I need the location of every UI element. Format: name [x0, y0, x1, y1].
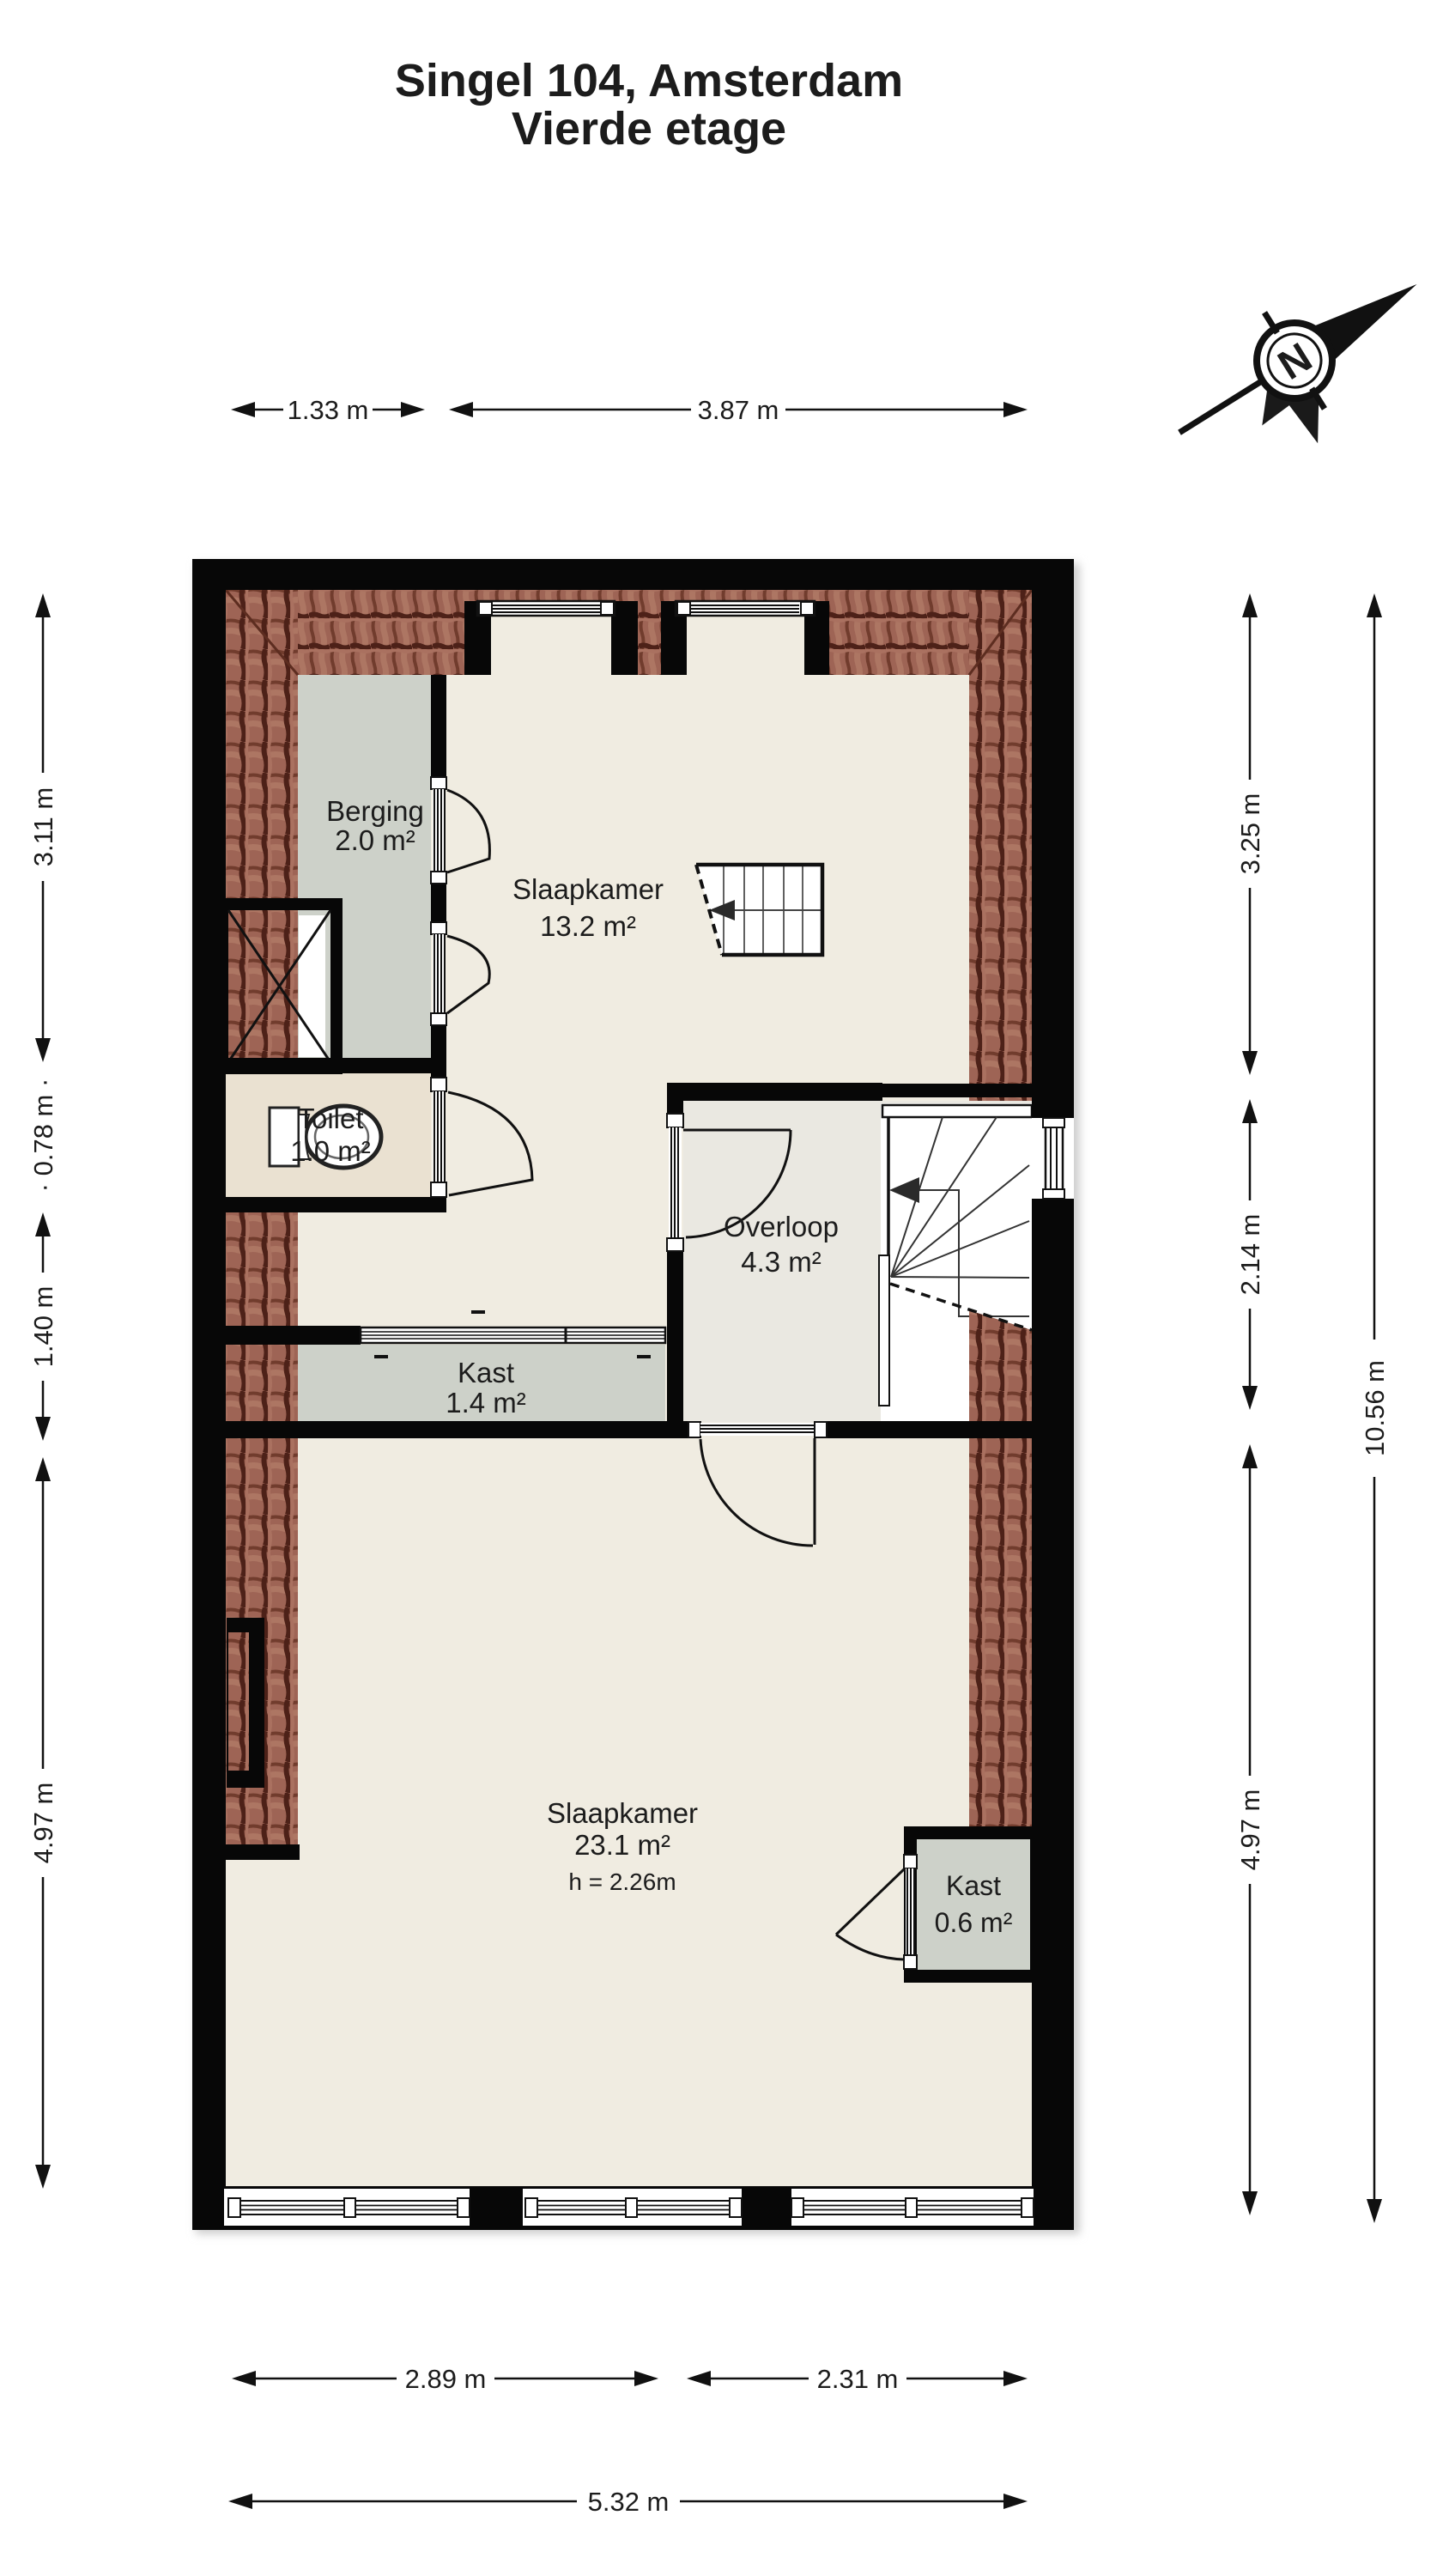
svg-text:Overloop: Overloop [724, 1211, 839, 1242]
svg-text:23.1 m²: 23.1 m² [574, 1829, 670, 1861]
svg-text:Vierde etage: Vierde etage [512, 103, 786, 155]
svg-text:2.14 m: 2.14 m [1235, 1214, 1265, 1296]
svg-text:· 0.78 m ·: · 0.78 m · [28, 1078, 58, 1193]
svg-text:0.6 m²: 0.6 m² [935, 1907, 1013, 1938]
svg-text:13.2 m²: 13.2 m² [540, 910, 636, 942]
svg-text:Toilet: Toilet [297, 1103, 363, 1134]
svg-text:Kast: Kast [458, 1357, 514, 1388]
svg-text:1.40 m: 1.40 m [28, 1286, 58, 1368]
svg-text:2.89 m: 2.89 m [405, 2364, 487, 2394]
svg-text:4.97 m: 4.97 m [28, 1783, 58, 1864]
svg-text:4.3 m²: 4.3 m² [741, 1246, 822, 1278]
svg-text:1.33 m: 1.33 m [288, 395, 369, 425]
svg-text:Slaapkamer: Slaapkamer [547, 1797, 698, 1829]
svg-text:2.31 m: 2.31 m [817, 2364, 899, 2394]
svg-text:1.0 m²: 1.0 m² [290, 1135, 371, 1167]
svg-text:1.4 m²: 1.4 m² [446, 1387, 526, 1419]
svg-text:h = 2.26m: h = 2.26m [568, 1868, 676, 1895]
svg-text:4.97 m: 4.97 m [1235, 1789, 1265, 1871]
svg-text:Kast: Kast [946, 1870, 1001, 1901]
svg-text:Berging: Berging [326, 795, 424, 827]
svg-text:Slaapkamer: Slaapkamer [512, 873, 664, 905]
svg-text:5.32 m: 5.32 m [588, 2487, 670, 2517]
svg-text:10.56 m: 10.56 m [1360, 1360, 1390, 1456]
svg-text:Singel 104, Amsterdam: Singel 104, Amsterdam [395, 55, 903, 106]
svg-text:3.87 m: 3.87 m [698, 395, 779, 425]
svg-text:3.25 m: 3.25 m [1235, 793, 1265, 875]
svg-text:3.11 m: 3.11 m [28, 787, 58, 866]
svg-text:2.0 m²: 2.0 m² [335, 824, 415, 856]
